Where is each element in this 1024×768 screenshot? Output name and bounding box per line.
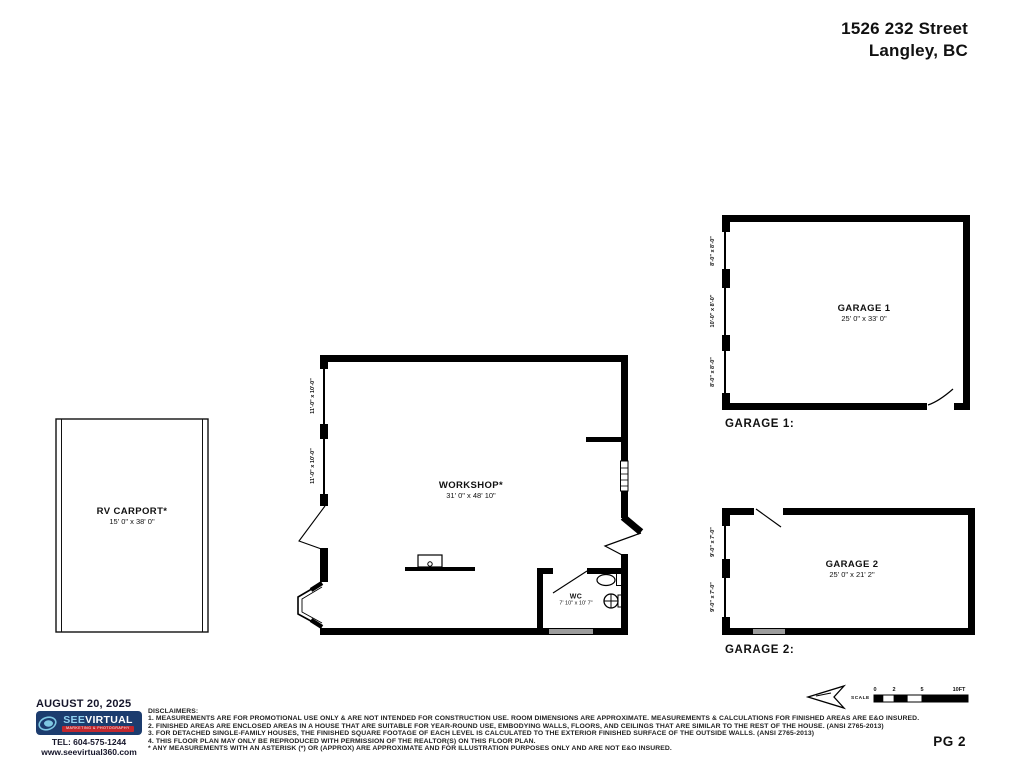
disclaimer-line: 4. THIS FLOOR PLAN MAY ONLY BE REPRODUCE… — [148, 738, 978, 745]
workshop-label: WORKSHOP* 31' 0" x 48' 10" — [439, 480, 503, 500]
plan-date: AUGUST 20, 2025 — [36, 698, 142, 710]
room-dims: 15' 0" x 38' 0" — [97, 517, 168, 526]
garage1-opening-dim: 8'-0" x 8'-0" — [710, 236, 716, 266]
room-dims: 31' 0" x 48' 10" — [439, 491, 503, 500]
room-name: RV CARPORT* — [97, 506, 168, 517]
room-dims: 25' 0" x 21' 2" — [826, 570, 879, 579]
disclaimers-block: DISCLAIMERS: 1. MEASUREMENTS ARE FOR PRO… — [148, 708, 978, 753]
logo-wordmark: SEEVIRTUAL — [63, 715, 133, 726]
disclaimer-line: 1. MEASUREMENTS ARE FOR PROMOTIONAL USE … — [148, 715, 978, 722]
room-name: WC — [559, 594, 592, 601]
garage2-caption: GARAGE 2: — [725, 644, 794, 656]
phone-number: TEL: 604-575-1244 — [36, 737, 142, 747]
room-name: GARAGE 1 — [838, 303, 891, 314]
garage1-opening-dim: 10'-0" x 8'-0" — [710, 295, 716, 328]
garage2-opening-dim: 9'-0" x 7'-0" — [710, 527, 716, 557]
scale-tick-10ft: 10FT — [953, 687, 966, 693]
wc-sink-icon — [597, 573, 623, 586]
garage1-caption: GARAGE 1: — [725, 418, 794, 430]
workshop-opening-dim: 11'-0" x 10'-0" — [310, 448, 316, 484]
garage2-opening-dim: 9'-0" x 7'-0" — [710, 582, 716, 612]
disclaimer-line: 3. FOR DETACHED SINGLE-FAMILY HOUSES, TH… — [148, 730, 978, 737]
logo-tagline: MARKETING & PHOTOGRAPHY — [62, 726, 134, 732]
room-dims: 7' 10" x 10' 7" — [559, 601, 592, 607]
page-number: PG 2 — [933, 734, 966, 749]
garage1-opening-dim: 8'-0" x 8'-0" — [710, 357, 716, 387]
north-arrow-icon — [808, 686, 844, 708]
scale-tick-2: 2 — [892, 687, 895, 693]
workbench-icon — [405, 555, 475, 571]
floor-plan-page: 1526 232 Street Langley, BC RV CARPORT* … — [0, 0, 1024, 768]
property-address: 1526 232 Street Langley, BC — [841, 18, 968, 62]
logo-text: SEEVIRTUAL MARKETING & PHOTOGRAPHY — [57, 715, 139, 732]
room-dims: 25' 0" x 33' 0" — [838, 314, 891, 323]
garage1-label: GARAGE 1 25' 0" x 33' 0" — [838, 303, 891, 323]
seevirtual-swoosh-icon — [38, 716, 57, 731]
scale-tick-5: 5 — [920, 687, 923, 693]
room-name: GARAGE 2 — [826, 559, 879, 570]
website-url: www.seevirtual360.com — [36, 747, 142, 757]
scale-tick-0: 0 — [873, 687, 876, 693]
disclaimer-line: 2. FINISHED AREAS ARE ENCLOSED AREAS IN … — [148, 723, 978, 730]
disclaimer-line: * ANY MEASUREMENTS WITH AN ASTERISK (*) … — [148, 745, 978, 752]
address-line1: 1526 232 Street — [841, 18, 968, 40]
wc-toilet-icon — [604, 594, 623, 608]
rv-carport-label: RV CARPORT* 15' 0" x 38' 0" — [97, 506, 168, 526]
scale-label: SCALE — [851, 696, 870, 701]
floor-plan-drawing — [0, 0, 1024, 768]
seevirtual-logo: SEEVIRTUAL MARKETING & PHOTOGRAPHY — [36, 711, 142, 735]
room-name: WORKSHOP* — [439, 480, 503, 491]
wc-label: WC 7' 10" x 10' 7" — [559, 594, 592, 607]
logo-see: SEE — [63, 714, 85, 726]
disclaimers-title: DISCLAIMERS: — [148, 708, 978, 715]
branding-block: AUGUST 20, 2025 SEEVIRTUAL MARKETING & P… — [36, 698, 142, 757]
workshop-opening-dim: 11'-0" x 10'-0" — [310, 378, 316, 414]
garage2-label: GARAGE 2 25' 0" x 21' 2" — [826, 559, 879, 579]
scale-bar — [874, 695, 968, 702]
address-line2: Langley, BC — [841, 40, 968, 62]
logo-virtual: VIRTUAL — [85, 714, 133, 726]
